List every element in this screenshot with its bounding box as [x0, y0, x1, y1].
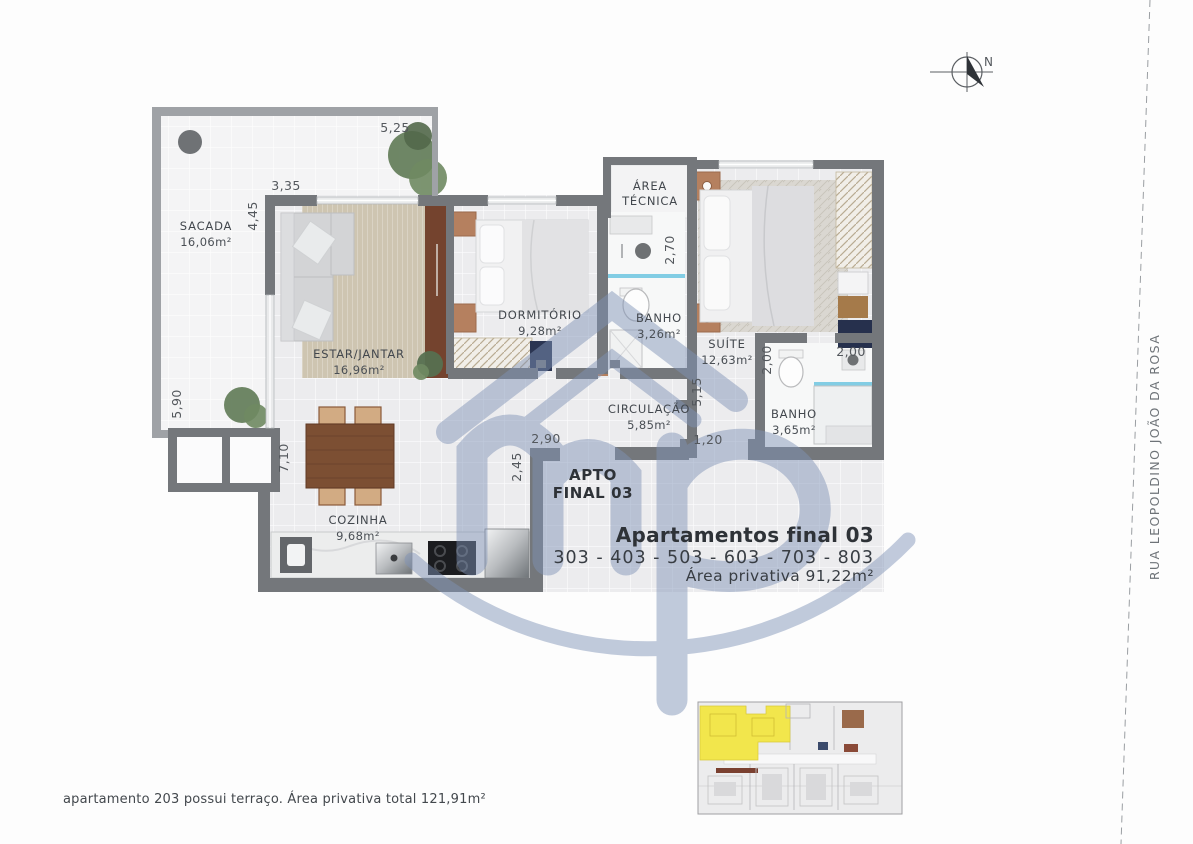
- room-label-suite: SUÍTE: [708, 336, 745, 351]
- dim-2-45: 2,45: [509, 452, 524, 481]
- dresser: [838, 296, 868, 318]
- room-label-sacada: SACADA: [180, 219, 232, 233]
- nightstand: [452, 212, 476, 236]
- dim-5-25: 5,25: [380, 120, 409, 135]
- footnote: apartamento 203 possui terraço. Área pri…: [63, 791, 486, 807]
- room-label-circulacao: CIRCULAÇÃO: [608, 401, 690, 416]
- unit-numbers: 303 - 403 - 503 - 603 - 703 - 803: [553, 548, 874, 568]
- svg-text:APTO: APTO: [569, 466, 617, 484]
- svg-text:5,85m²: 5,85m²: [627, 418, 671, 432]
- svg-text:16,06m²: 16,06m²: [180, 235, 232, 249]
- pillow: [480, 267, 504, 305]
- suite-wardrobe: [836, 172, 872, 268]
- pillow: [480, 225, 504, 263]
- floor-plan-drawing: SACADA 16,06m² ESTAR/JANTAR 16,96m² DORM…: [0, 0, 1193, 844]
- room-label-banho1: BANHO: [636, 311, 682, 325]
- svg-text:16,96m²: 16,96m²: [333, 363, 385, 377]
- shower-glass: [814, 382, 872, 386]
- washbasin: [635, 243, 651, 259]
- north-label: N: [984, 55, 993, 69]
- dim-2-00-b: 2,00: [836, 344, 865, 359]
- fridge: [485, 529, 529, 578]
- shower-glass: [607, 274, 685, 278]
- svg-text:3,65m²: 3,65m²: [772, 423, 816, 437]
- dim-7-10: 7,10: [276, 443, 291, 472]
- floor-plan-page: SACADA 16,06m² ESTAR/JANTAR 16,96m² DORM…: [0, 0, 1193, 844]
- keyplan: [698, 702, 902, 814]
- chair: [319, 488, 345, 505]
- room-label-cozinha: COZINHA: [328, 513, 387, 527]
- pillow: [704, 196, 730, 250]
- room-label-estar: ESTAR/JANTAR: [313, 347, 405, 361]
- shelf: [838, 272, 868, 294]
- private-area: Área privativa 91,22m²: [686, 566, 874, 585]
- svg-text:9,68m²: 9,68m²: [336, 529, 380, 543]
- svg-text:TÉCNICA: TÉCNICA: [621, 193, 678, 208]
- street-label: RUA LEOPOLDINO JOÃO DA ROSA: [1147, 334, 1162, 580]
- room-label-banho2: BANHO: [771, 407, 817, 421]
- suite-furniture: [694, 172, 872, 348]
- svg-text:9,28m²: 9,28m²: [518, 324, 562, 338]
- window: [317, 197, 418, 204]
- chair: [355, 488, 381, 505]
- pillow: [704, 256, 730, 310]
- dim-2-00-a: 2,00: [759, 345, 774, 374]
- window: [488, 197, 556, 204]
- dim-4-45: 4,45: [245, 201, 260, 230]
- keyplan-accent: [842, 710, 864, 728]
- dim-5-90: 5,90: [169, 389, 184, 418]
- north-compass-icon: N: [930, 52, 993, 92]
- svg-text:3,26m²: 3,26m²: [637, 327, 681, 341]
- dim-5-15: 5,15: [689, 377, 704, 406]
- svg-text:12,63m²: 12,63m²: [701, 353, 753, 367]
- column: [178, 130, 202, 154]
- dim-2-70: 2,70: [662, 235, 677, 264]
- page-title: Apartamentos final 03: [616, 523, 874, 547]
- nightstand: [452, 304, 476, 332]
- svg-text:FINAL 03: FINAL 03: [553, 484, 633, 502]
- room-label-dormitorio: DORMITÓRIO: [498, 307, 582, 322]
- sliding-door: [266, 295, 274, 428]
- toilet: [779, 357, 803, 387]
- dim-2-90: 2,90: [531, 431, 560, 446]
- dim-3-35: 3,35: [271, 178, 300, 193]
- chair: [355, 407, 381, 424]
- property-boundary-line: [1121, 0, 1150, 844]
- dim-1-20: 1,20: [693, 432, 722, 447]
- window: [719, 161, 813, 168]
- room-label-area-tecnica: ÁREA: [633, 178, 667, 193]
- vanity: [610, 216, 652, 234]
- chair: [319, 407, 345, 424]
- blanket: [752, 186, 814, 326]
